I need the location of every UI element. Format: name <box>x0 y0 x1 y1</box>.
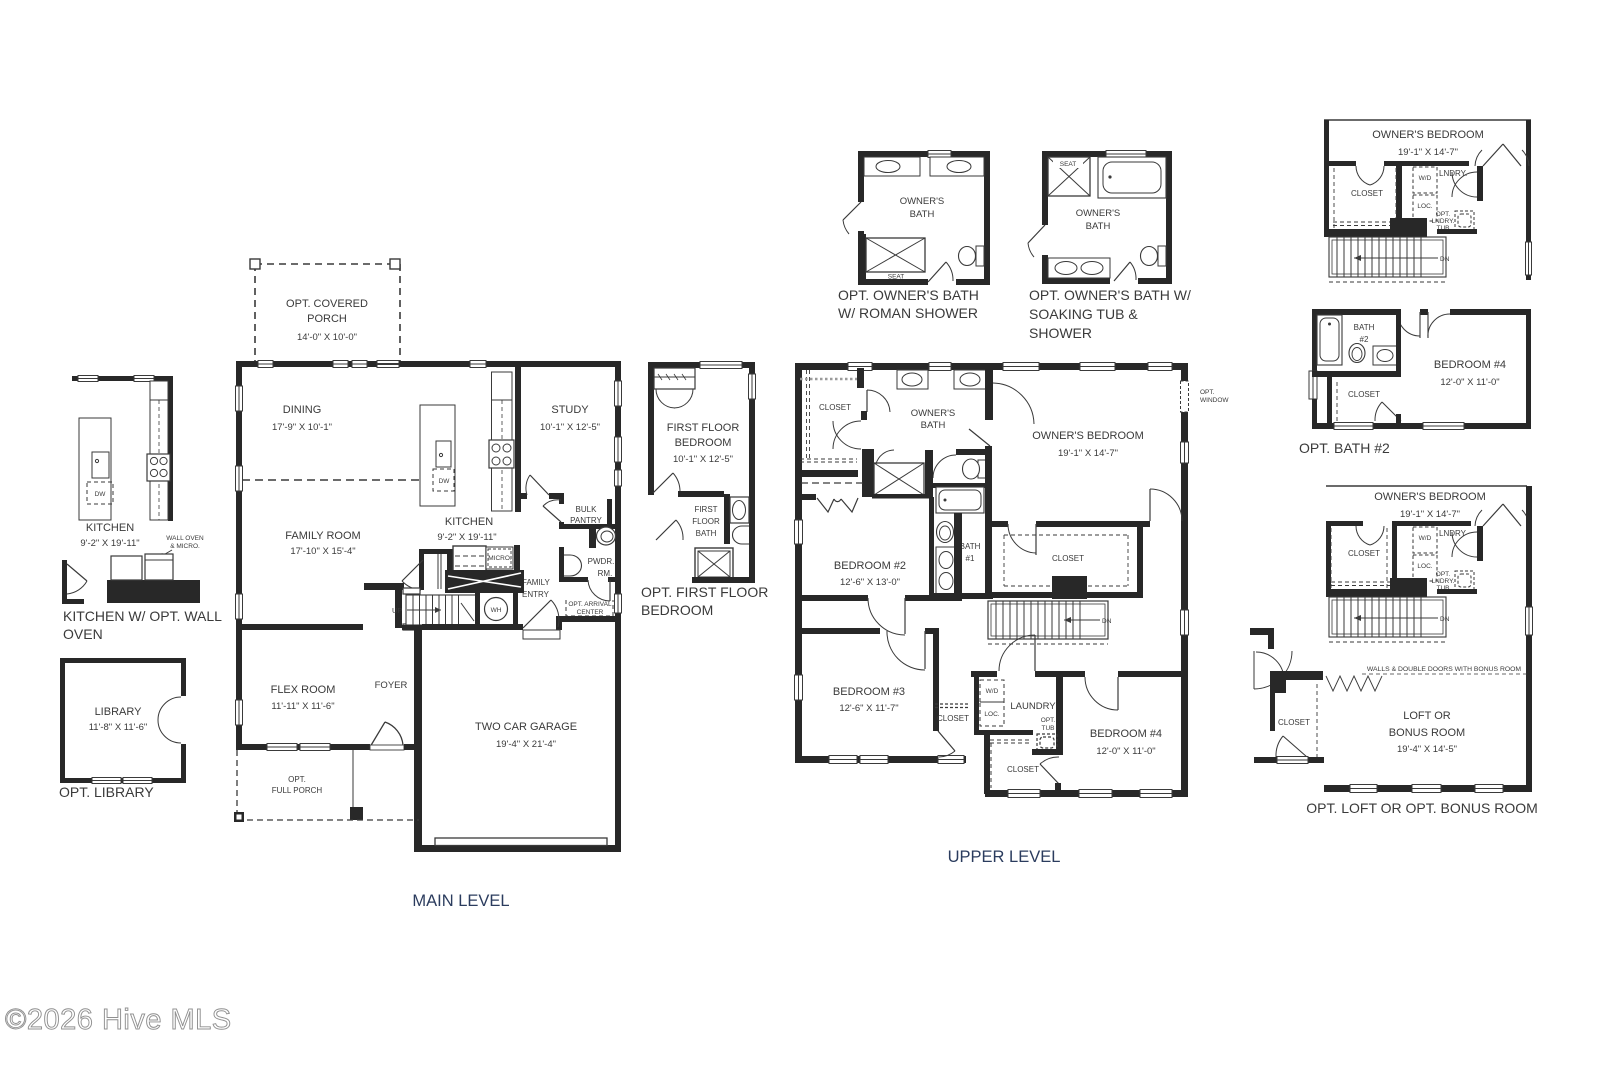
svg-text:BATH: BATH <box>696 529 717 538</box>
svg-text:FIRST: FIRST <box>694 505 717 514</box>
svg-text:19'-1" X 14'-7": 19'-1" X 14'-7" <box>1400 509 1460 520</box>
svg-text:10'-1" X 12'-5": 10'-1" X 12'-5" <box>673 454 733 465</box>
svg-text:CLOSET: CLOSET <box>1351 189 1383 198</box>
svg-text:OPT. OWNER'S BATH W/: OPT. OWNER'S BATH W/ <box>1029 287 1191 303</box>
svg-text:OWNER'S BEDROOM: OWNER'S BEDROOM <box>1032 430 1144 442</box>
svg-text:MAIN LEVEL: MAIN LEVEL <box>412 892 509 910</box>
svg-text:CLOSET: CLOSET <box>1052 554 1084 563</box>
svg-text:CENTER: CENTER <box>577 609 604 616</box>
svg-text:CLOSET: CLOSET <box>937 714 969 723</box>
svg-text:OPT. OWNER'S BATH: OPT. OWNER'S BATH <box>838 287 979 303</box>
svg-text:OWNER'S: OWNER'S <box>1076 208 1121 219</box>
svg-text:OWNER'S BEDROOM: OWNER'S BEDROOM <box>1372 129 1484 141</box>
svg-text:WALLS & DOUBLE DOORS WITH BONU: WALLS & DOUBLE DOORS WITH BONUS ROOM <box>1367 666 1522 673</box>
svg-text:DN: DN <box>1440 256 1450 263</box>
svg-text:BEDROOM #4: BEDROOM #4 <box>1434 359 1506 371</box>
svg-text:OWNER'S: OWNER'S <box>900 196 945 207</box>
svg-text:OPT.: OPT. <box>1436 571 1451 578</box>
svg-text:LAUNDRY: LAUNDRY <box>1010 701 1056 712</box>
svg-text:BONUS ROOM: BONUS ROOM <box>1389 727 1465 739</box>
svg-text:KITCHEN: KITCHEN <box>445 516 493 528</box>
svg-text:OPT. LOFT OR OPT. BONUS ROOM: OPT. LOFT OR OPT. BONUS ROOM <box>1306 800 1538 816</box>
svg-text:TWO CAR GARAGE: TWO CAR GARAGE <box>475 721 577 733</box>
svg-text:FLEX ROOM: FLEX ROOM <box>271 684 336 696</box>
svg-text:BATH: BATH <box>1086 221 1111 232</box>
svg-text:UPPER LEVEL: UPPER LEVEL <box>948 848 1061 866</box>
svg-text:DN: DN <box>1102 618 1112 625</box>
svg-text:DINING: DINING <box>283 404 322 416</box>
svg-text:ENTRY: ENTRY <box>522 590 550 599</box>
svg-text:BATH: BATH <box>960 542 981 551</box>
svg-text:#1: #1 <box>966 554 975 563</box>
svg-text:BATH: BATH <box>910 209 935 220</box>
svg-text:OVEN: OVEN <box>63 626 103 642</box>
svg-text:W/D: W/D <box>1419 535 1432 542</box>
svg-text:SEAT: SEAT <box>888 274 905 281</box>
svg-text:BEDROOM #2: BEDROOM #2 <box>834 560 906 572</box>
svg-text:9'-2" X 19'-11": 9'-2" X 19'-11" <box>437 532 496 543</box>
svg-text:CLOSET: CLOSET <box>1007 765 1039 774</box>
svg-text:BATH: BATH <box>1354 323 1375 332</box>
svg-text:WINDOW: WINDOW <box>1200 397 1229 404</box>
svg-text:19'-4" X 21'-4": 19'-4" X 21'-4" <box>496 739 556 750</box>
svg-text:SEAT: SEAT <box>1060 161 1077 168</box>
svg-text:OPT. LIBRARY: OPT. LIBRARY <box>59 784 154 800</box>
svg-text:WH: WH <box>491 607 502 614</box>
svg-text:17'-9" X 10'-1": 17'-9" X 10'-1" <box>272 422 332 433</box>
svg-text:WALL OVEN: WALL OVEN <box>166 535 204 542</box>
svg-text:FLOOR: FLOOR <box>692 517 720 526</box>
svg-text:OPT. FIRST FLOOR: OPT. FIRST FLOOR <box>641 584 768 600</box>
svg-text:FAMILY: FAMILY <box>522 578 551 587</box>
svg-text:OPT.: OPT. <box>288 775 306 784</box>
svg-text:14'-0" X 10'-0": 14'-0" X 10'-0" <box>297 332 357 343</box>
svg-text:LOC.: LOC. <box>984 711 999 718</box>
svg-text:BATH: BATH <box>921 420 946 431</box>
svg-text:OPT.: OPT. <box>1200 389 1215 396</box>
svg-text:OPT. ARRIVAL: OPT. ARRIVAL <box>568 601 612 608</box>
svg-text:OPT. BATH #2: OPT. BATH #2 <box>1299 440 1390 456</box>
svg-text:19'-1" X 14'-7": 19'-1" X 14'-7" <box>1058 448 1118 459</box>
svg-text:FOYER: FOYER <box>375 680 408 691</box>
svg-text:TUB: TUB <box>1042 725 1055 732</box>
svg-text:BULK: BULK <box>576 505 598 514</box>
svg-text:RM.: RM. <box>598 569 613 578</box>
svg-text:12'-6" X 11'-7": 12'-6" X 11'-7" <box>839 703 898 714</box>
svg-text:12'-6" X 13'-0": 12'-6" X 13'-0" <box>840 577 900 588</box>
svg-text:BEDROOM #4: BEDROOM #4 <box>1090 728 1162 740</box>
svg-text:OPT. COVERED: OPT. COVERED <box>286 298 368 310</box>
svg-text:CLOSET: CLOSET <box>1278 718 1310 727</box>
svg-text:W/D: W/D <box>986 688 999 695</box>
svg-text:DW: DW <box>95 491 107 498</box>
svg-text:9'-2" X 19'-11": 9'-2" X 19'-11" <box>80 538 139 549</box>
svg-text:PORCH: PORCH <box>307 313 347 325</box>
svg-text:OWNER'S BEDROOM: OWNER'S BEDROOM <box>1374 491 1486 503</box>
svg-text:11'-8" X 11'-6": 11'-8" X 11'-6" <box>89 722 148 733</box>
svg-text:19'-4" X 14'-5": 19'-4" X 14'-5" <box>1397 744 1457 755</box>
svg-text:12'-0" X 11'-0": 12'-0" X 11'-0" <box>1440 377 1499 388</box>
svg-text:FIRST FLOOR: FIRST FLOOR <box>667 422 740 434</box>
svg-text:W/ ROMAN SHOWER: W/ ROMAN SHOWER <box>838 305 978 321</box>
svg-text:KITCHEN: KITCHEN <box>86 522 134 534</box>
svg-text:12'-0" X 11'-0": 12'-0" X 11'-0" <box>1096 746 1155 757</box>
svg-text:LNDRY.: LNDRY. <box>1432 218 1455 225</box>
svg-text:CLOSET: CLOSET <box>819 403 851 412</box>
svg-text:LNDRY.: LNDRY. <box>1432 578 1455 585</box>
svg-text:SOAKING TUB &: SOAKING TUB & <box>1029 306 1138 322</box>
svg-text:OWNER'S: OWNER'S <box>911 408 956 419</box>
svg-text:#2: #2 <box>1360 335 1369 344</box>
svg-text:PANTRY: PANTRY <box>570 516 602 525</box>
svg-text:W/D: W/D <box>1419 175 1432 182</box>
svg-text:MICRO.: MICRO. <box>488 555 512 562</box>
svg-text:OPT.: OPT. <box>1041 717 1056 724</box>
svg-text:FAMILY ROOM: FAMILY ROOM <box>285 530 360 542</box>
svg-text:UP: UP <box>392 606 402 615</box>
svg-text:DN: DN <box>1440 616 1450 623</box>
svg-text:& MICRO.: & MICRO. <box>170 543 200 550</box>
svg-text:BEDROOM: BEDROOM <box>641 602 713 618</box>
svg-text:BEDROOM: BEDROOM <box>675 437 732 449</box>
svg-text:FULL PORCH: FULL PORCH <box>272 786 323 795</box>
svg-text:DW: DW <box>439 478 451 485</box>
svg-text:STUDY: STUDY <box>551 404 589 416</box>
svg-text:19'-1" X 14'-7": 19'-1" X 14'-7" <box>1398 147 1458 158</box>
svg-text:KITCHEN W/ OPT. WALL: KITCHEN W/ OPT. WALL <box>63 608 222 624</box>
svg-text:OPT.: OPT. <box>1436 211 1451 218</box>
svg-text:10'-1" X 12'-5": 10'-1" X 12'-5" <box>540 422 600 433</box>
svg-text:11'-11" X 11'-6": 11'-11" X 11'-6" <box>271 701 334 712</box>
svg-text:17'-10" X 15'-4": 17'-10" X 15'-4" <box>290 546 355 557</box>
svg-text:LOC.: LOC. <box>1417 203 1432 210</box>
svg-text:LIBRARY: LIBRARY <box>95 706 143 718</box>
svg-text:LOFT OR: LOFT OR <box>1403 710 1451 722</box>
svg-text:©2026 Hive MLS: ©2026 Hive MLS <box>5 1004 232 1036</box>
svg-text:CLOSET: CLOSET <box>1348 390 1380 399</box>
svg-text:BEDROOM #3: BEDROOM #3 <box>833 686 905 698</box>
svg-text:SHOWER: SHOWER <box>1029 325 1092 341</box>
svg-text:PWDR.: PWDR. <box>588 557 615 566</box>
svg-text:CLOSET: CLOSET <box>1348 549 1380 558</box>
svg-text:LOC.: LOC. <box>1417 563 1432 570</box>
